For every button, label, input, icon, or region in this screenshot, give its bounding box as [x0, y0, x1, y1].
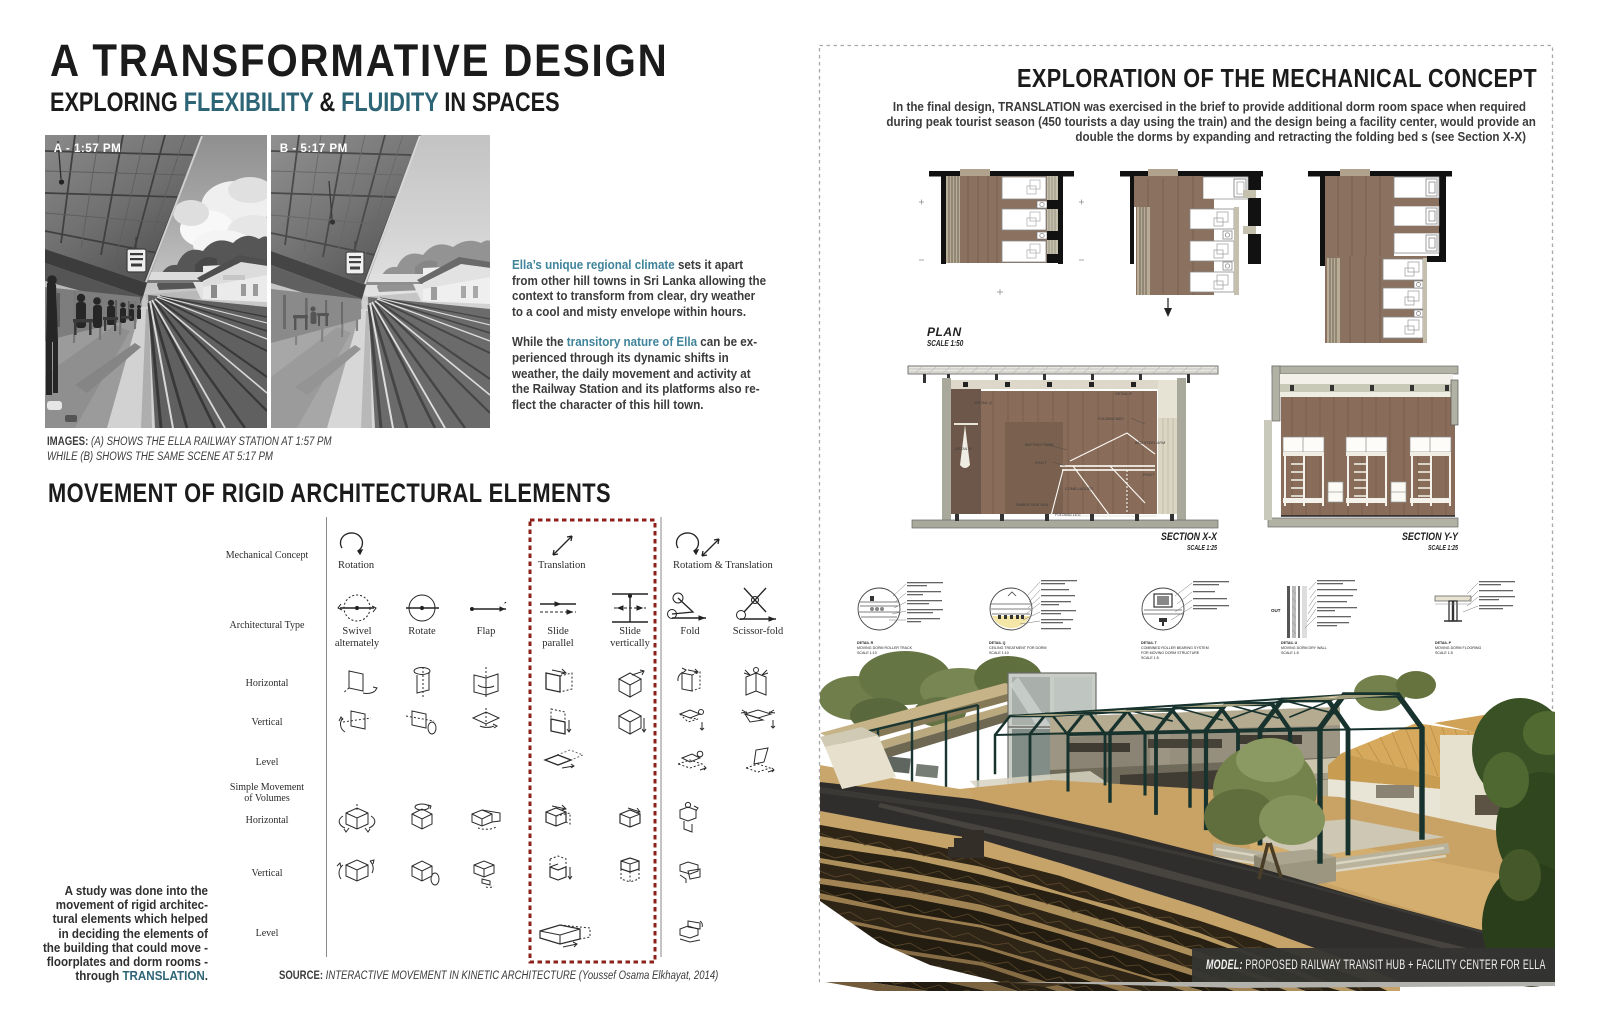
svg-text:Rotate: Rotate [408, 626, 436, 637]
svg-text:Rotatiom & Translation: Rotatiom & Translation [673, 560, 774, 571]
svg-text:Vertical: Vertical [251, 717, 282, 728]
svg-text:B - 5:17 PM: B - 5:17 PM [280, 141, 348, 155]
svg-text:Vertical: Vertical [251, 868, 282, 879]
svg-text:Simple Movement: Simple Movement [230, 782, 304, 793]
svg-text:SCALE 1:25: SCALE 1:25 [1187, 545, 1217, 552]
svg-text:SECTION X-X: SECTION X-X [1161, 531, 1218, 543]
svg-text:Level: Level [256, 928, 279, 939]
svg-text:PIVOT: PIVOT [1143, 473, 1155, 477]
svg-text:Scissor-fold: Scissor-fold [733, 626, 784, 637]
svg-text:FOLDING BED: FOLDING BED [1098, 417, 1124, 421]
svg-text:FOLDING LEG: FOLDING LEG [1055, 513, 1081, 517]
svg-text:MODEL: PROPOSED RAILWAY TRANSI: MODEL: PROPOSED RAILWAY TRANSIT HUB + FA… [1206, 958, 1546, 972]
svg-text:Horizontal: Horizontal [246, 815, 289, 826]
svg-text:Flap: Flap [477, 626, 496, 637]
svg-text:SECTION Y-Y: SECTION Y-Y [1402, 531, 1459, 543]
svg-text:TIMBER SIDE RAIL: TIMBER SIDE RAIL [1015, 503, 1049, 507]
svg-text:DETAIL R: DETAIL R [1115, 392, 1132, 396]
svg-text:BED STEEL ARM: BED STEEL ARM [1135, 441, 1166, 445]
svg-text:alternately: alternately [335, 638, 380, 649]
svg-text:Horizontal: Horizontal [246, 678, 289, 689]
svg-text:A - 1:57 PM: A - 1:57 PM [54, 141, 122, 155]
svg-text:Level: Level [256, 757, 279, 768]
svg-text:PIVOT: PIVOT [1035, 461, 1047, 465]
svg-text:Slide: Slide [547, 626, 569, 637]
svg-text:Slide: Slide [619, 626, 641, 637]
svg-text:Fold: Fold [680, 626, 700, 637]
svg-text:Mechanical Concept: Mechanical Concept [226, 550, 309, 561]
svg-text:Architectural Type: Architectural Type [230, 620, 305, 631]
svg-text:SCALE 1:25: SCALE 1:25 [1428, 545, 1458, 552]
svg-text:BATTING FOAM: BATTING FOAM [1025, 443, 1054, 447]
svg-text:Rotation: Rotation [338, 560, 375, 571]
svg-text:DETAIL S: DETAIL S [955, 447, 972, 451]
svg-text:vertically: vertically [610, 638, 650, 649]
svg-text:COMB LADDER: COMB LADDER [1065, 487, 1093, 491]
svg-text:parallel: parallel [542, 638, 574, 649]
svg-text:of Volumes: of Volumes [244, 793, 290, 804]
svg-text:Swivel: Swivel [342, 626, 371, 637]
svg-text:Translation: Translation [538, 560, 586, 571]
svg-text:DETAIL Q: DETAIL Q [975, 401, 992, 405]
